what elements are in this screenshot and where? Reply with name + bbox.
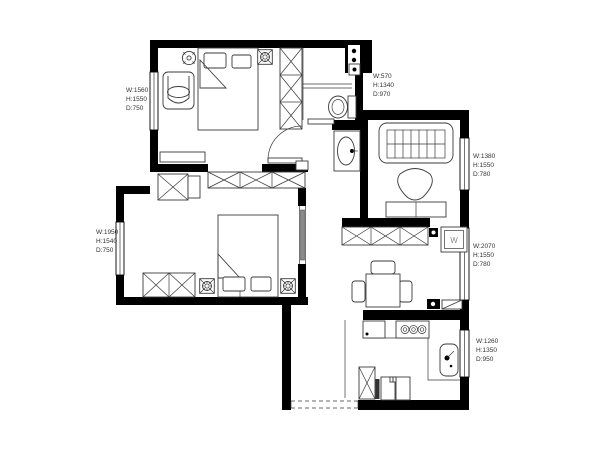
- label-bedroom-top-left: W:1560 H:1550 D:750: [126, 87, 149, 112]
- floor-plan-drawing: W: [0, 0, 600, 450]
- ceiling-fan-icon: [258, 50, 273, 65]
- svg-text:H:1550: H:1550: [126, 96, 147, 103]
- kitchen-sink: [440, 344, 458, 376]
- wall-east-1: [460, 110, 469, 138]
- fridge: [381, 377, 410, 400]
- stove: [396, 321, 429, 338]
- pillow: [204, 53, 226, 68]
- ceiling-light-icon: [182, 51, 195, 64]
- window-living-east: [460, 138, 469, 190]
- low-shelf: [160, 152, 205, 162]
- wall-bedroom1-south-west: [150, 164, 208, 172]
- bedroom2: [143, 161, 308, 297]
- svg-text:D:950: D:950: [476, 356, 494, 363]
- sideboard: [342, 227, 438, 245]
- dining-table: [366, 274, 400, 307]
- pillow: [223, 277, 245, 291]
- washing-machine-label: W: [450, 236, 458, 245]
- kitchen: [345, 320, 460, 400]
- wall-lamp: [427, 299, 440, 309]
- svg-text:D:750: D:750: [96, 247, 114, 254]
- svg-text:W:2070: W:2070: [473, 243, 496, 250]
- chair: [371, 261, 395, 274]
- counter-ledge: [308, 119, 334, 124]
- label-living-room: W:1380 H:1550 D:780: [473, 153, 496, 178]
- corner-cabinet: [158, 174, 200, 200]
- svg-text:D:780: D:780: [473, 171, 491, 178]
- sliding-door-bedroom2: [300, 206, 306, 264]
- ceiling-fan-icon: [281, 279, 296, 294]
- wall-east-2: [460, 190, 469, 228]
- washing-machine: W: [441, 227, 467, 252]
- dining-table-set: [352, 261, 412, 307]
- entry-threshold: [291, 401, 358, 408]
- tv-cabinet: [386, 202, 446, 217]
- cabinet-side-panel: [376, 379, 380, 399]
- bedroom1: [160, 48, 302, 163]
- wardrobe-sw: [143, 273, 195, 297]
- svg-text:H:1550: H:1550: [473, 162, 494, 169]
- label-kitchen: W:1260 H:1350 D:950: [476, 338, 499, 363]
- svg-text:W:570: W:570: [373, 73, 392, 80]
- coffee-table: [398, 169, 433, 201]
- wardrobe-top-row: [208, 172, 305, 188]
- pillow: [232, 55, 251, 68]
- svg-text:W:1380: W:1380: [473, 153, 496, 160]
- wall-bedroom2-south: [116, 297, 308, 305]
- door-swing-arc: [268, 126, 302, 160]
- floor-plan-canvas: W: [0, 0, 600, 450]
- pillow: [251, 277, 271, 291]
- sink-cabinet: [363, 321, 385, 338]
- svg-text:D:970: D:970: [373, 91, 391, 98]
- ceiling-fan-icon: [200, 279, 215, 294]
- wall-dining-north: [342, 218, 430, 227]
- door-leaf: [301, 210, 305, 260]
- vent-grille: [442, 300, 462, 309]
- svg-text:W:1950: W:1950: [96, 229, 119, 236]
- window-kitchen-east: [460, 330, 469, 377]
- label-bedroom-bottom-left: W:1950 H:1540 D:750: [96, 229, 119, 254]
- wall-hall-west: [282, 305, 291, 410]
- wall-bedroom2-west-top: [116, 186, 124, 222]
- svg-text:D:780: D:780: [473, 261, 491, 268]
- door-bedroom1: [268, 126, 302, 163]
- chair: [399, 281, 412, 302]
- wall-living-north: [360, 110, 460, 120]
- wall-fixtures: [348, 45, 360, 75]
- bed-double-2: [218, 215, 278, 297]
- wall-bedroom1-west-top: [150, 40, 158, 72]
- wall-bedroom2-east-bottom: [298, 264, 306, 305]
- svg-text:W:1260: W:1260: [476, 338, 499, 345]
- bathroom: [303, 45, 360, 171]
- tall-cabinet: [359, 367, 375, 399]
- label-dining: W:2070 H:1550 D:780: [473, 243, 496, 268]
- svg-text:D:750: D:750: [126, 105, 144, 112]
- svg-text:H:1540: H:1540: [96, 238, 117, 245]
- svg-text:W:1560: W:1560: [126, 87, 149, 94]
- armchair: [163, 72, 194, 109]
- wall-kitchen-north: [363, 310, 469, 320]
- svg-text:H:1340: H:1340: [373, 82, 394, 89]
- label-bathroom: W:570 H:1340 D:970: [373, 73, 394, 98]
- window-bedroom1-west: [150, 72, 158, 130]
- wall-north: [150, 40, 372, 48]
- hall-end-cap: [296, 161, 308, 170]
- wardrobe-column: [280, 48, 302, 129]
- svg-text:H:1350: H:1350: [476, 347, 497, 354]
- dining: W: [342, 227, 467, 309]
- toilet: [329, 96, 357, 118]
- svg-text:H:1550: H:1550: [473, 252, 494, 259]
- chair: [352, 281, 365, 302]
- wall-bedroom2-east-top: [298, 188, 306, 206]
- wall-kitchen-south: [358, 400, 469, 410]
- sofa: [379, 123, 453, 163]
- living-room: [379, 123, 453, 217]
- washbasin: [334, 131, 360, 171]
